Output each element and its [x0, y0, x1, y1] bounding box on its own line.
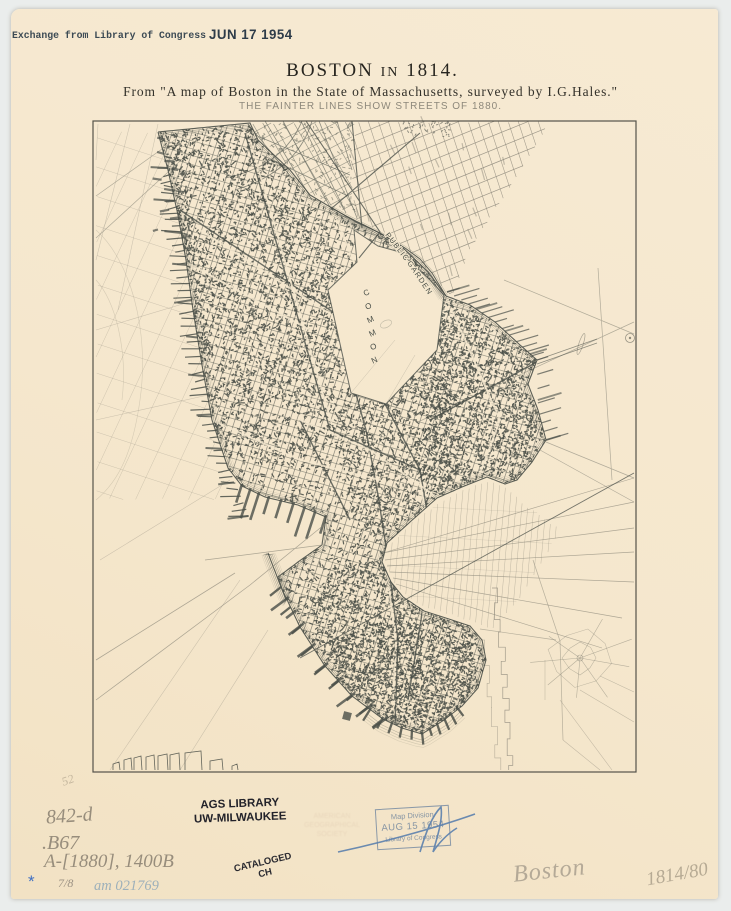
- svg-text:C: C: [362, 287, 371, 298]
- svg-text:O: O: [364, 301, 373, 312]
- svg-text:N: N: [370, 355, 379, 366]
- svg-text:M: M: [368, 328, 378, 339]
- svg-text:O: O: [369, 341, 378, 352]
- svg-text:M: M: [366, 314, 376, 325]
